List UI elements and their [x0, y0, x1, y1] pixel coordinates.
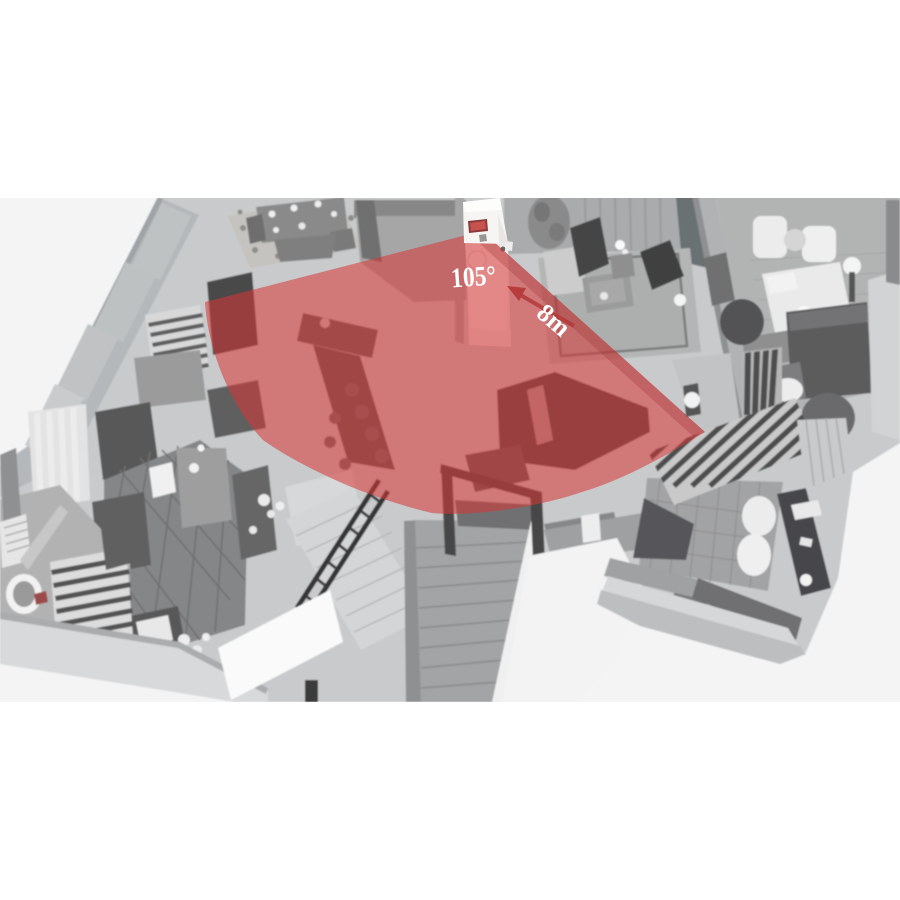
svg-text:105°: 105° [450, 260, 497, 294]
